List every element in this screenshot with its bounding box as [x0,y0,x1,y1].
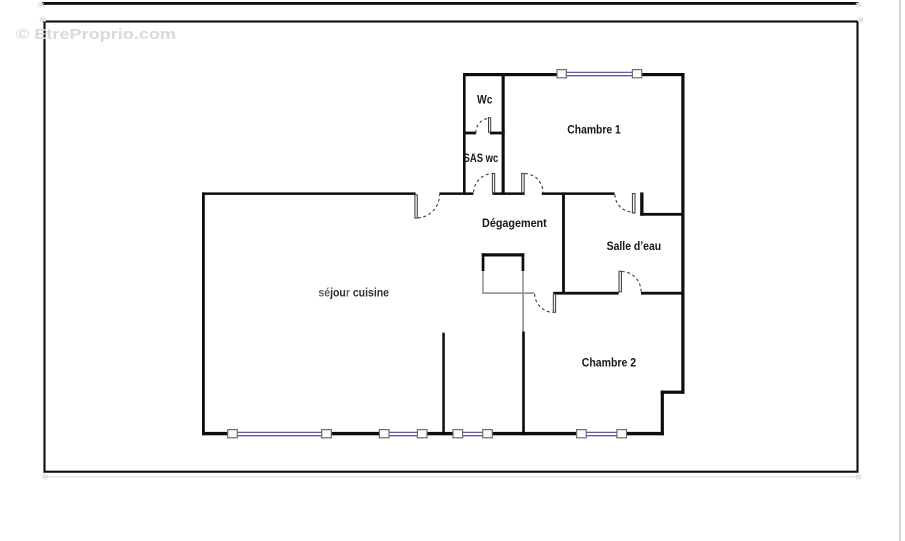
svg-text:© EtreProprio.com: © EtreProprio.com [16,26,176,43]
svg-text:✱: ✱ [857,15,865,25]
svg-text:Wc: Wc [477,95,493,107]
svg-text:✱: ✱ [41,472,49,482]
svg-text:Dégagement: Dégagement [482,216,547,230]
svg-text:séjour cuisine: séjour cuisine [318,287,389,299]
svg-text:✱: ✱ [855,472,863,482]
svg-text:Chambre 1: Chambre 1 [567,125,621,137]
svg-text:SAS wc: SAS wc [464,151,499,165]
svg-text:✱: ✱ [855,0,863,10]
svg-text:✱: ✱ [39,15,47,25]
svg-text:Chambre 2: Chambre 2 [582,357,636,369]
svg-text:Salle d’eau: Salle d’eau [607,239,662,253]
svg-text:✱: ✱ [37,0,45,10]
